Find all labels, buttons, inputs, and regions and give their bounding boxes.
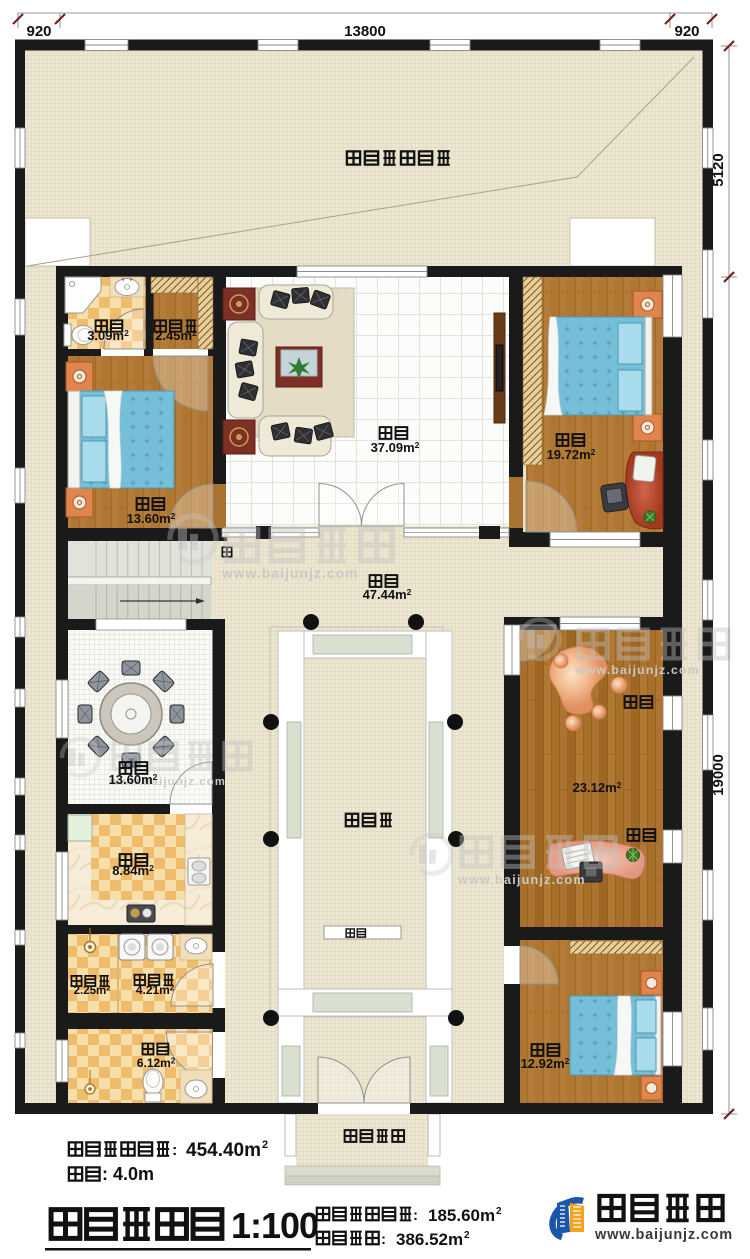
svg-text::: : (413, 1207, 418, 1224)
svg-text:www.baijunjz.com: www.baijunjz.com (594, 1227, 733, 1243)
svg-text:3.09m2: 3.09m2 (87, 328, 129, 343)
svg-text:13800: 13800 (344, 23, 386, 40)
svg-text:454.40m: 454.40m (186, 1140, 261, 1161)
svg-text:4.21m2: 4.21m2 (136, 983, 175, 997)
svg-text:2: 2 (262, 1139, 268, 1151)
svg-text::: : (381, 1231, 386, 1248)
svg-text:23.12m2: 23.12m2 (573, 780, 622, 795)
svg-text:2.45m2: 2.45m2 (155, 328, 197, 343)
svg-text:2: 2 (496, 1206, 502, 1217)
svg-text:1:100: 1:100 (231, 1205, 318, 1246)
svg-text:37.09m2: 37.09m2 (371, 440, 420, 455)
svg-text:47.44m2: 47.44m2 (363, 587, 412, 602)
svg-text:920: 920 (26, 23, 51, 40)
svg-text:2: 2 (464, 1230, 470, 1241)
svg-text:386.52m: 386.52m (396, 1230, 463, 1249)
svg-text:www.baijunjz.com: www.baijunjz.com (457, 873, 586, 887)
svg-text:8.84m2: 8.84m2 (112, 863, 154, 878)
svg-text:www.baijunjz.com: www.baijunjz.com (221, 566, 359, 581)
svg-text:6.12m2: 6.12m2 (137, 1056, 176, 1070)
svg-text::: : (172, 1142, 177, 1159)
svg-text:185.60m: 185.60m (428, 1206, 495, 1225)
svg-text:13.60m2: 13.60m2 (127, 511, 176, 526)
svg-text:19000: 19000 (710, 754, 727, 796)
svg-text:12.92m2: 12.92m2 (521, 1056, 570, 1071)
svg-text:13.60m2: 13.60m2 (109, 772, 158, 787)
svg-text:www.baijunjz.com: www.baijunjz.com (574, 663, 700, 677)
svg-text:920: 920 (674, 23, 699, 40)
svg-text:19.72m2: 19.72m2 (547, 447, 596, 462)
svg-text:2.25m2: 2.25m2 (74, 984, 111, 997)
svg-text:: 4.0m: : 4.0m (102, 1164, 154, 1184)
svg-text:5120: 5120 (710, 153, 727, 186)
